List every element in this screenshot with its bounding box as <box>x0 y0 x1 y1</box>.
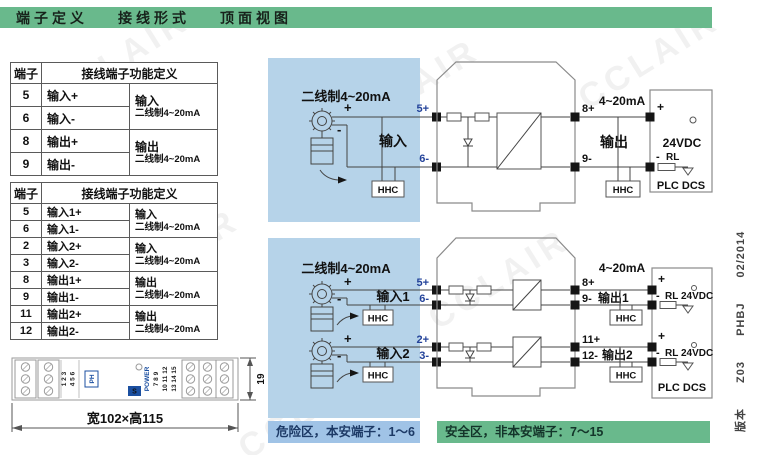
plus-label: + <box>344 100 352 115</box>
load-resistor-icon <box>658 164 675 171</box>
input-label: 输入 <box>379 133 407 149</box>
isolation-amplifier-icon <box>513 337 541 367</box>
hhc-communicator: HHC <box>610 367 642 382</box>
terminal-12-label: 12- <box>582 350 598 362</box>
terminal-screw-block <box>182 360 199 398</box>
resistor-icon <box>449 286 463 294</box>
input1-label: 输入1 <box>376 289 409 304</box>
load-resistor-label: RL <box>665 291 678 302</box>
page: CCLAIR CCLAIR CCLAIR CCLAIR CCLAIR CCLAI… <box>0 0 758 455</box>
load-resistor-label: RL <box>665 348 678 359</box>
load-resistor-label: RL <box>666 152 679 163</box>
safe-zone-note: 安全区，非本安端子：7～15 <box>437 421 710 443</box>
power-label: POWER <box>144 366 151 391</box>
terminal-6-label: 6- <box>419 153 429 165</box>
supply-terminal-icon <box>692 343 697 348</box>
output1-label: 输出1 <box>598 290 629 305</box>
brand-logo: PH <box>85 371 98 387</box>
resistor-icon <box>477 286 491 294</box>
terminal-3-label: 3- <box>419 350 429 362</box>
psu-minus-label: - <box>656 290 660 302</box>
width-dimension-label: 宽102×高115 <box>86 411 163 426</box>
hhc-communicator: HHC <box>606 181 640 197</box>
psu-plus-label: + <box>658 272 665 286</box>
zener-diode-icon <box>465 290 475 305</box>
power-supply-box: + - RL 24VDC + - RL 24VDC <box>648 268 714 398</box>
svg-text:HHC: HHC <box>368 371 389 382</box>
terminal-screw-block <box>38 360 59 398</box>
plc-dcs-label: PLC DCS <box>657 180 705 192</box>
svg-text:HHC: HHC <box>613 185 634 196</box>
terminal-8-label: 8+ <box>582 103 595 115</box>
svg-text:PH: PH <box>89 374 96 383</box>
right-terminal-numbers: 10 11 12 <box>162 366 169 391</box>
psu-minus-label: - <box>656 151 660 163</box>
width-dimension: 宽102×高115 <box>12 403 238 432</box>
plc-dcs-label: PLC DCS <box>658 382 706 394</box>
hhc-communicator: HHC <box>363 310 393 325</box>
wiring-diagram-single-channel: 二线制4~20mA + - <box>268 58 712 222</box>
power-led <box>136 364 142 370</box>
terminal-5-label: 5+ <box>416 103 429 115</box>
terminal-9-label: 9- <box>582 293 592 305</box>
wiring-diagram-dual-channel: 二线制4~20mA + - <box>268 238 713 418</box>
output-current-label: 4~20mA <box>599 94 646 108</box>
psu-voltage-label: 24VDC <box>663 136 702 150</box>
zener-diode-icon <box>465 347 475 362</box>
isolation-amplifier-icon <box>497 113 541 169</box>
terminal-square <box>571 343 580 352</box>
version-word: 版本 <box>735 408 747 432</box>
hazard-zone-note: 危险区，本安端子：1～6 <box>268 421 420 443</box>
maker-logo: S <box>128 386 141 396</box>
hhc-communicator: HHC <box>372 181 404 197</box>
terminal-square <box>571 163 580 172</box>
power-supply-box: + 24VDC - RL PLC DCS <box>646 90 713 192</box>
device-top-view: 1 2 3 4 5 6 PH POWER S 7 8 9 10 11 12 13… <box>0 346 268 455</box>
version-date: 02/2014 <box>735 231 747 278</box>
resistor-icon <box>475 113 489 121</box>
terminal-square <box>571 358 580 367</box>
terminal-square <box>571 286 580 295</box>
ground-icon <box>683 306 693 313</box>
terminal-square <box>646 113 655 122</box>
hhc-communicator: HHC <box>363 367 393 382</box>
terminal-9-label: 9- <box>582 153 592 165</box>
depth-dimension: 19 <box>240 358 267 400</box>
zener-diode-icon <box>463 117 473 167</box>
left-terminal-numbers: 1 2 3 <box>61 371 68 386</box>
version-model: PHBJ <box>735 303 747 336</box>
terminal-8-label: 8+ <box>582 277 595 289</box>
svg-text:S: S <box>132 389 137 396</box>
left-terminal-numbers: 4 5 6 <box>70 371 77 386</box>
terminal-11-label: 11+ <box>582 334 600 346</box>
terminal-6-label: 6- <box>419 293 429 305</box>
resistor-icon <box>447 113 461 121</box>
psu-voltage-label: 24VDC <box>681 348 713 359</box>
terminal-square <box>571 113 580 122</box>
psu-plus-label: + <box>657 100 664 114</box>
ground-icon <box>683 363 693 370</box>
psu-voltage-label: 24VDC <box>681 291 713 302</box>
terminal-screw-block <box>216 360 233 398</box>
right-terminal-numbers: 13 14 15 <box>171 366 178 392</box>
svg-text:HHC: HHC <box>616 314 637 325</box>
minus-label: - <box>337 122 341 137</box>
output-current-label: 4~20mA <box>599 261 646 275</box>
svg-text:HHC: HHC <box>378 185 399 196</box>
isolator-module-outline <box>437 238 575 396</box>
supply-terminal-icon <box>690 117 696 123</box>
depth-dimension-label: 19 <box>256 373 267 385</box>
output2-label: 输出2 <box>602 347 633 362</box>
svg-text:HHC: HHC <box>368 314 389 325</box>
terminal-square <box>571 301 580 310</box>
terminal-square <box>646 163 655 172</box>
plus-label: + <box>344 274 352 289</box>
supply-terminal-icon <box>692 286 697 291</box>
resistor-icon <box>477 343 491 351</box>
hhc-communicator: HHC <box>610 310 642 325</box>
psu-plus-label: + <box>658 329 665 343</box>
resistor-icon <box>449 343 463 351</box>
terminal-screw-block <box>199 360 216 398</box>
psu-minus-label: - <box>656 347 660 359</box>
terminal-screw-block <box>15 360 36 398</box>
output-label: 输出 <box>600 134 628 150</box>
terminal-2-label: 2+ <box>416 334 429 346</box>
load-resistor-icon <box>660 359 676 366</box>
ground-icon <box>683 168 693 175</box>
version-code: Z03 <box>735 361 747 383</box>
version-side-note: 版本 Z03 PHBJ 02/2014 <box>732 140 747 432</box>
right-terminal-numbers: 7 8 9 <box>153 371 160 386</box>
plus-label: + <box>344 331 352 346</box>
load-resistor-icon <box>660 302 676 309</box>
isolation-amplifier-icon <box>513 280 541 310</box>
terminal-5-label: 5+ <box>416 277 429 289</box>
svg-text:HHC: HHC <box>616 371 637 382</box>
input2-label: 输入2 <box>376 346 409 361</box>
